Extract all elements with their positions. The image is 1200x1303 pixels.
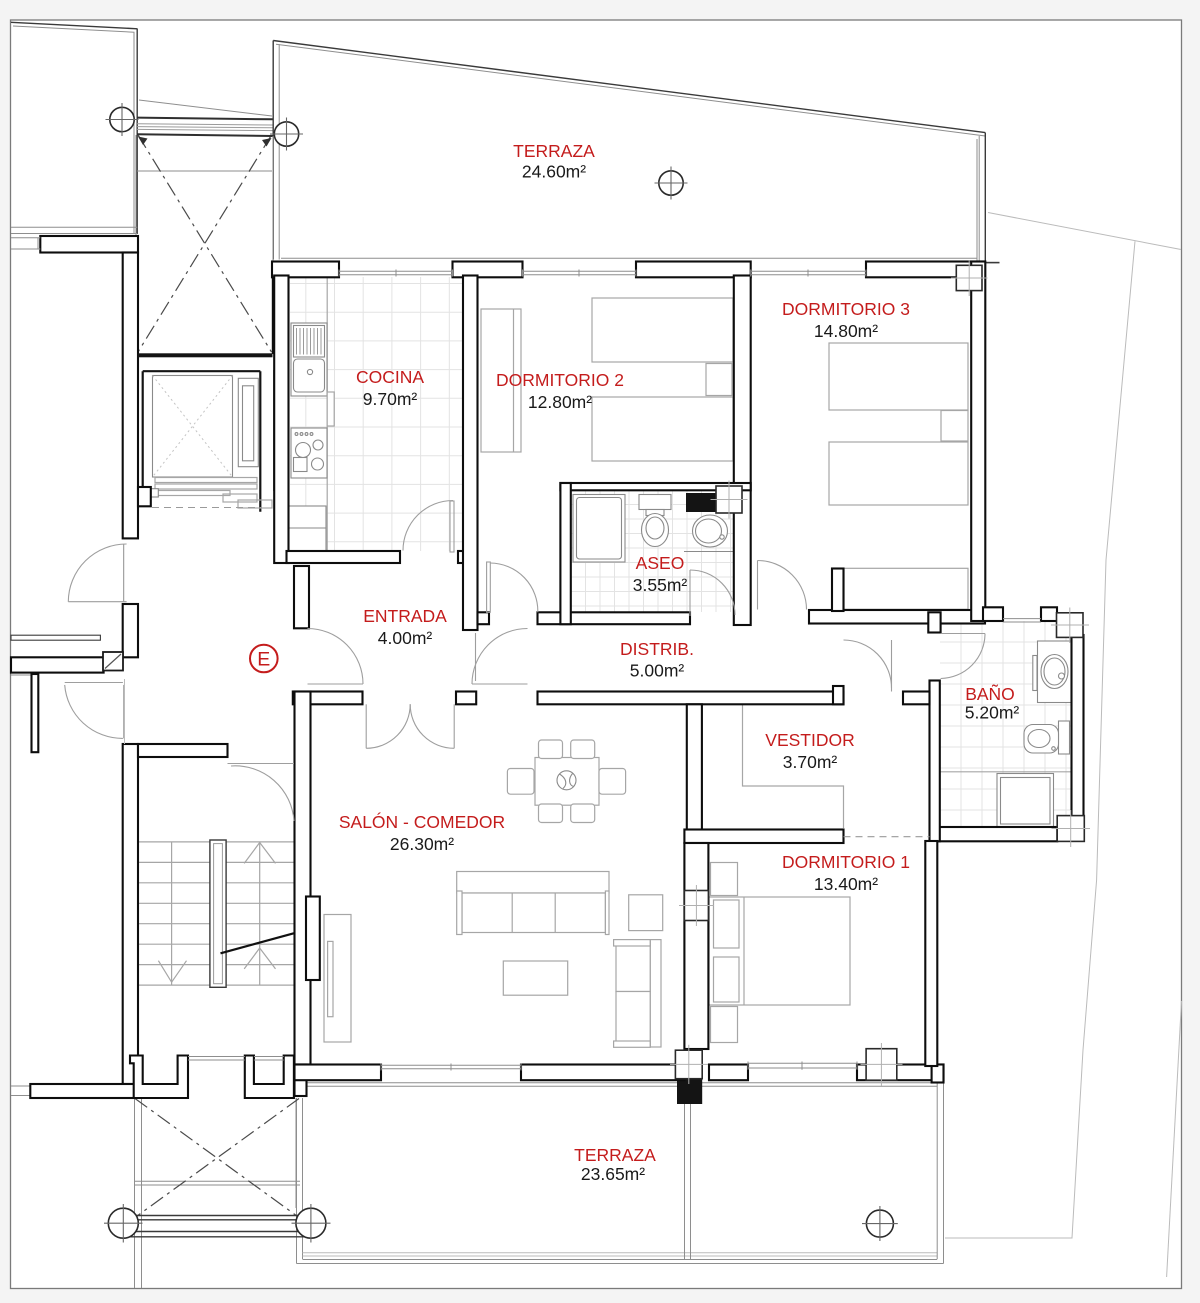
svg-text:DORMITORIO 2: DORMITORIO 2	[496, 370, 624, 390]
svg-text:ENTRADA: ENTRADA	[363, 606, 447, 626]
svg-text:SALÓN - COMEDOR: SALÓN - COMEDOR	[339, 811, 505, 832]
svg-text:COCINA: COCINA	[356, 367, 424, 387]
svg-text:DORMITORIO 3: DORMITORIO 3	[782, 299, 910, 319]
svg-text:DISTRIB.: DISTRIB.	[620, 639, 694, 659]
svg-text:DORMITORIO 1: DORMITORIO 1	[782, 852, 910, 872]
svg-text:3.70m²: 3.70m²	[783, 752, 838, 772]
svg-text:5.00m²: 5.00m²	[630, 661, 685, 681]
svg-text:3.55m²: 3.55m²	[633, 575, 688, 595]
svg-text:13.40m²: 13.40m²	[814, 874, 878, 894]
svg-text:14.80m²: 14.80m²	[814, 321, 878, 341]
svg-text:24.60m²: 24.60m²	[522, 162, 586, 182]
svg-text:5.20m²: 5.20m²	[965, 703, 1020, 723]
svg-text:E: E	[257, 648, 270, 670]
svg-text:VESTIDOR: VESTIDOR	[765, 730, 854, 750]
svg-text:TERRAZA: TERRAZA	[574, 1145, 656, 1165]
svg-text:12.80m²: 12.80m²	[528, 392, 592, 412]
svg-text:9.70m²: 9.70m²	[363, 389, 418, 409]
svg-text:4.00m²: 4.00m²	[378, 628, 433, 648]
svg-text:ASEO: ASEO	[636, 553, 685, 573]
svg-text:BAÑO: BAÑO	[965, 683, 1015, 704]
svg-text:23.65m²: 23.65m²	[581, 1164, 645, 1184]
svg-text:TERRAZA: TERRAZA	[513, 141, 595, 161]
svg-text:26.30m²: 26.30m²	[390, 834, 454, 854]
